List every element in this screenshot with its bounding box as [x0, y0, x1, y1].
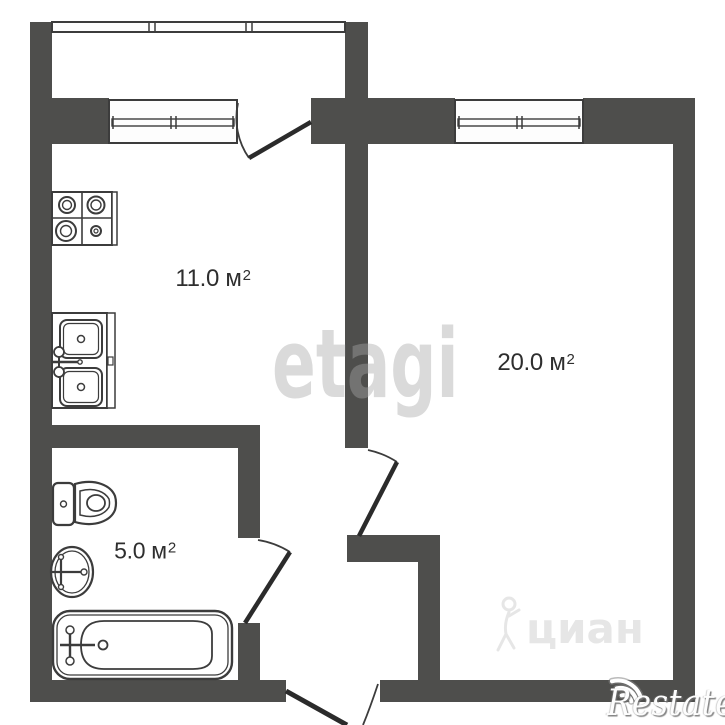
area-sup: 2: [567, 351, 575, 368]
living-room-window: [455, 100, 583, 143]
kitchen-sink: [52, 313, 115, 408]
wall-living-top-left: [368, 98, 455, 144]
balcony-door: [236, 103, 311, 158]
wall-hall-vertical: [418, 562, 440, 680]
wall-right: [673, 98, 695, 702]
balcony-railing: [52, 22, 345, 32]
area-sup: 2: [243, 267, 251, 284]
room-label-living: 20.0 м2: [497, 349, 574, 377]
room-label-kitchen: 11.0 м2: [175, 265, 250, 293]
wall-bottom-right: [380, 680, 695, 702]
wall-hall-horizontal: [347, 535, 440, 562]
kitchen-window: [109, 100, 237, 143]
floor-plan-drawing: [0, 0, 725, 725]
area-unit: м: [219, 265, 242, 292]
living-room-door: [359, 450, 397, 536]
room-label-bathroom: 5.0 м2: [114, 538, 176, 565]
toilet-tank: [53, 483, 74, 525]
bathroom-door: [245, 540, 290, 623]
wall-partition-kitchen-living: [345, 22, 368, 448]
wall-kitchen-top-right: [311, 98, 347, 144]
stove: [52, 192, 117, 245]
floor-plan: 11.0 м2 20.0 м2 5.0 м2 etagi циан: [0, 0, 725, 725]
area-value: 5.0: [114, 538, 145, 564]
bathtub: [53, 611, 232, 679]
area-sup: 2: [168, 540, 176, 557]
wall-bath-right-lower: [238, 623, 260, 680]
area-value: 11.0: [175, 265, 219, 292]
entrance-door: [286, 684, 378, 725]
wall-kitchen-top-left: [52, 98, 109, 144]
wall-bottom-left: [30, 680, 286, 702]
washbasin: [51, 547, 93, 597]
area-unit: м: [145, 538, 167, 564]
area-value: 20.0: [497, 349, 543, 376]
wall-left: [30, 22, 52, 702]
wall-bath-right-upper: [238, 425, 260, 538]
wall-kitchen-bath-divider: [30, 425, 260, 448]
area-unit: м: [543, 349, 566, 376]
toilet: [53, 482, 116, 525]
